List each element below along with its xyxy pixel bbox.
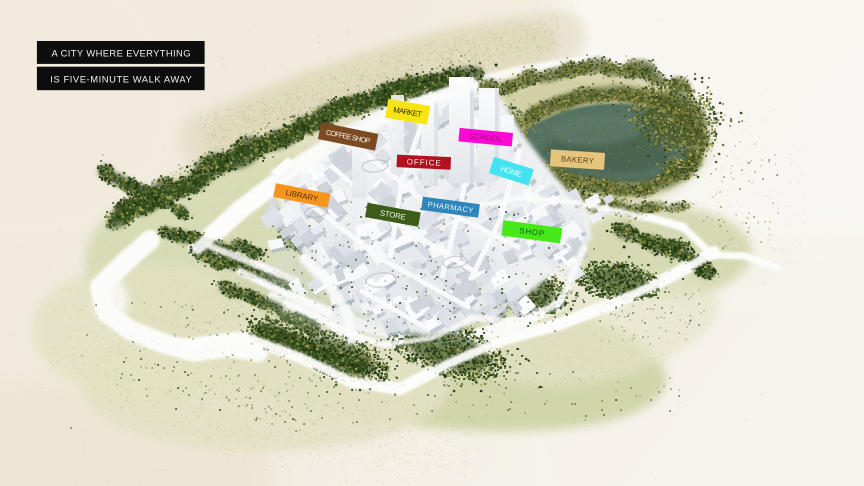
svg-text:IS FIVE-MINUTE WALK AWAY: IS FIVE-MINUTE WALK AWAY	[50, 74, 192, 85]
svg-text:A CITY WHERE EVERYTHING: A CITY WHERE EVERYTHING	[52, 47, 191, 58]
svg-text:OFFICE: OFFICE	[407, 157, 441, 168]
